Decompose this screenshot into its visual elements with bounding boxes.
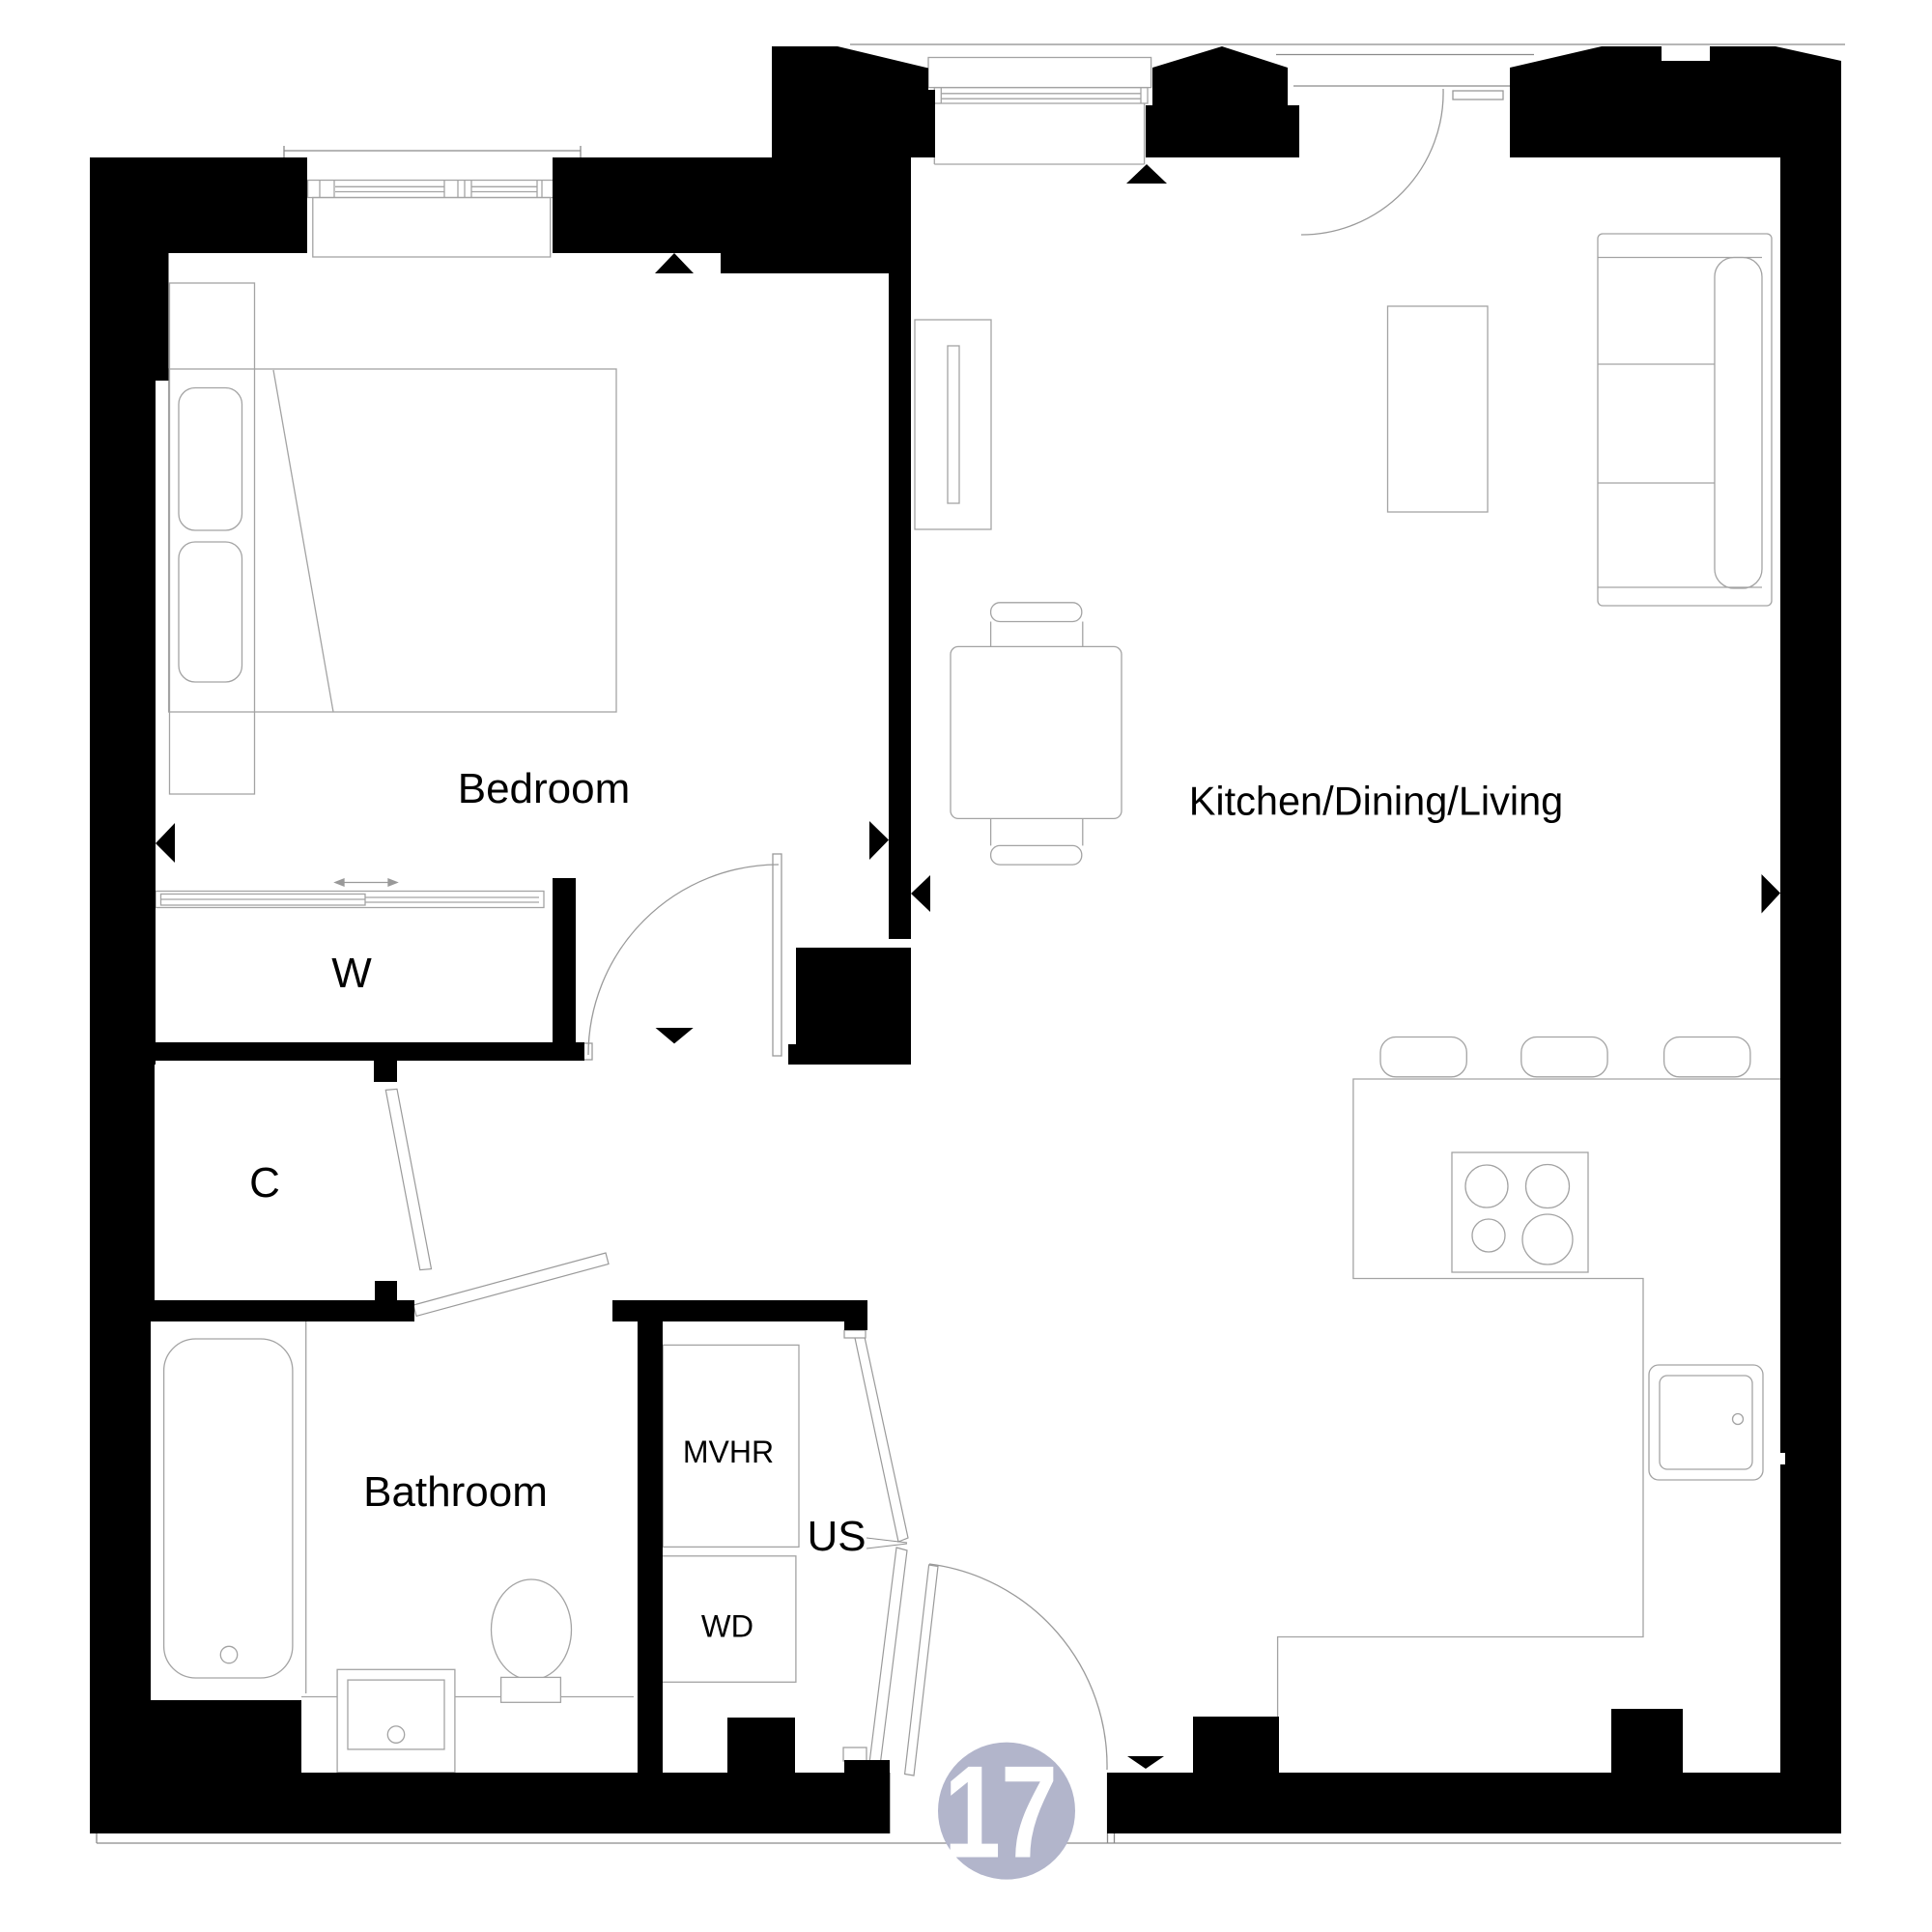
svg-text:WD: WD [701, 1609, 753, 1644]
svg-text:US: US [807, 1513, 866, 1560]
svg-text:C: C [249, 1159, 280, 1207]
svg-text:Kitchen/Dining/Living: Kitchen/Dining/Living [1189, 779, 1564, 824]
svg-text:17: 17 [944, 1739, 1058, 1886]
svg-text:W: W [331, 950, 372, 997]
svg-text:Bedroom: Bedroom [458, 765, 631, 812]
svg-text:MVHR: MVHR [683, 1435, 774, 1469]
svg-text:Bathroom: Bathroom [363, 1468, 548, 1516]
